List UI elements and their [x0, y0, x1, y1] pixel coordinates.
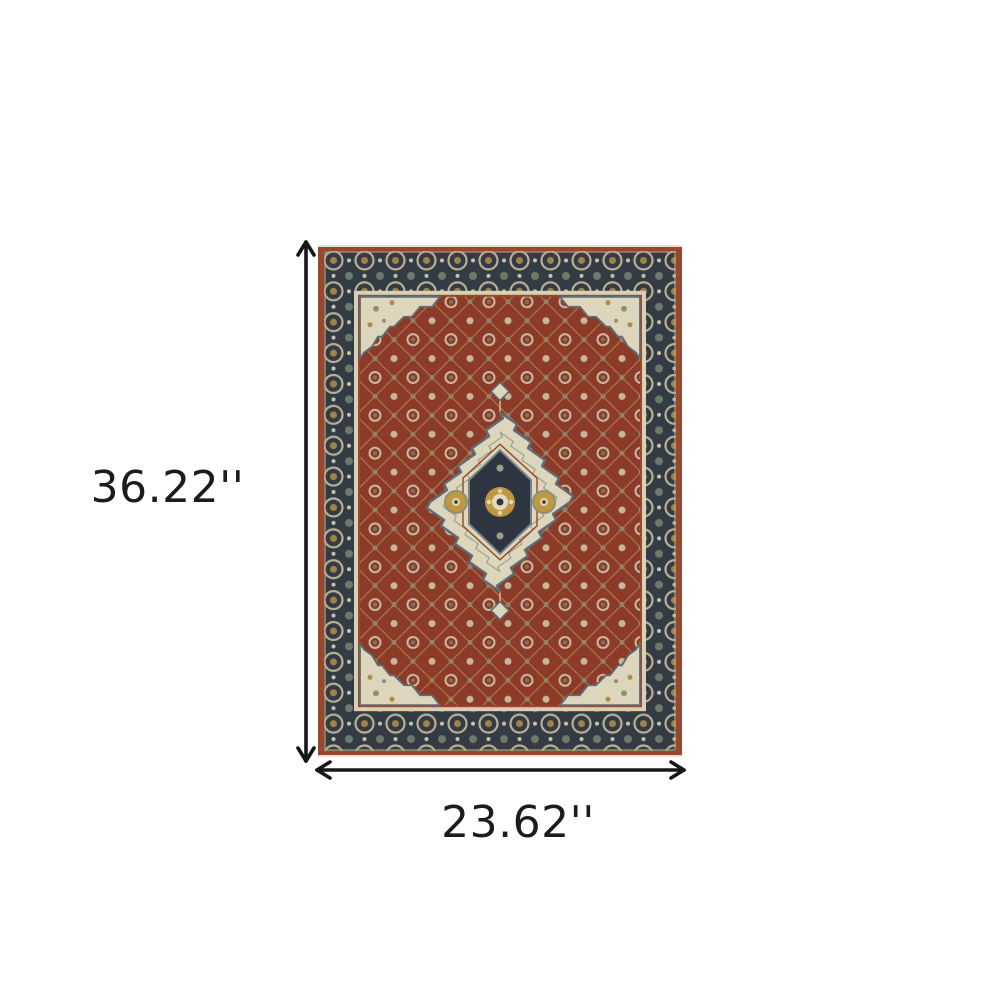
- height-arrow: [298, 242, 314, 761]
- rug-illustration: [318, 245, 682, 757]
- rug-image: [318, 245, 682, 757]
- width-dimension-label: 23.62'': [398, 799, 638, 847]
- product-dimension-diagram: 36.22'' 23.62'': [0, 0, 1000, 1000]
- width-arrow: [317, 762, 684, 778]
- height-dimension-label: 36.22'': [55, 464, 280, 512]
